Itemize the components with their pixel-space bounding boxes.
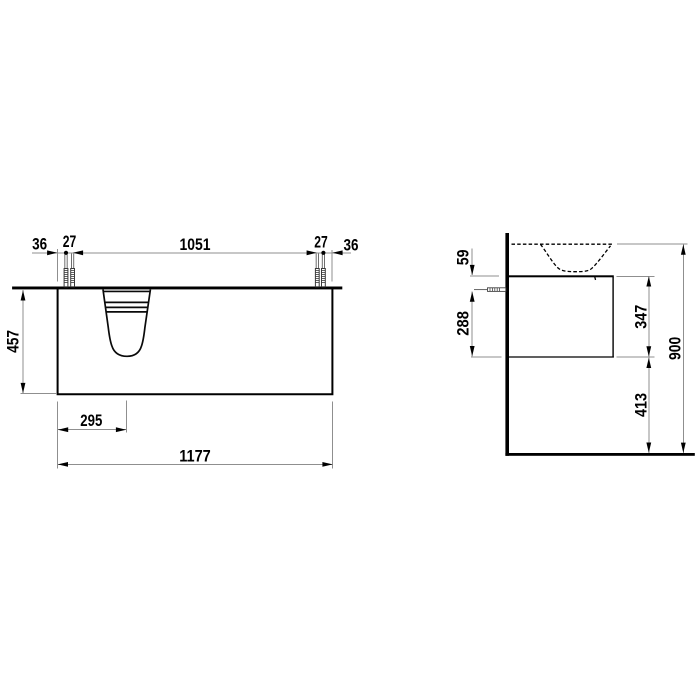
svg-text:27: 27 xyxy=(314,232,328,251)
svg-text:1177: 1177 xyxy=(179,447,211,466)
svg-text:413: 413 xyxy=(631,393,650,417)
svg-text:347: 347 xyxy=(631,305,650,329)
svg-text:900: 900 xyxy=(665,337,684,360)
svg-text:36: 36 xyxy=(344,235,359,254)
svg-text:295: 295 xyxy=(80,411,102,430)
svg-text:288: 288 xyxy=(454,311,473,336)
svg-text:36: 36 xyxy=(32,234,47,253)
svg-text:59: 59 xyxy=(454,250,473,266)
svg-text:1051: 1051 xyxy=(180,235,211,254)
svg-text:27: 27 xyxy=(63,232,77,251)
svg-text:457: 457 xyxy=(4,330,23,353)
